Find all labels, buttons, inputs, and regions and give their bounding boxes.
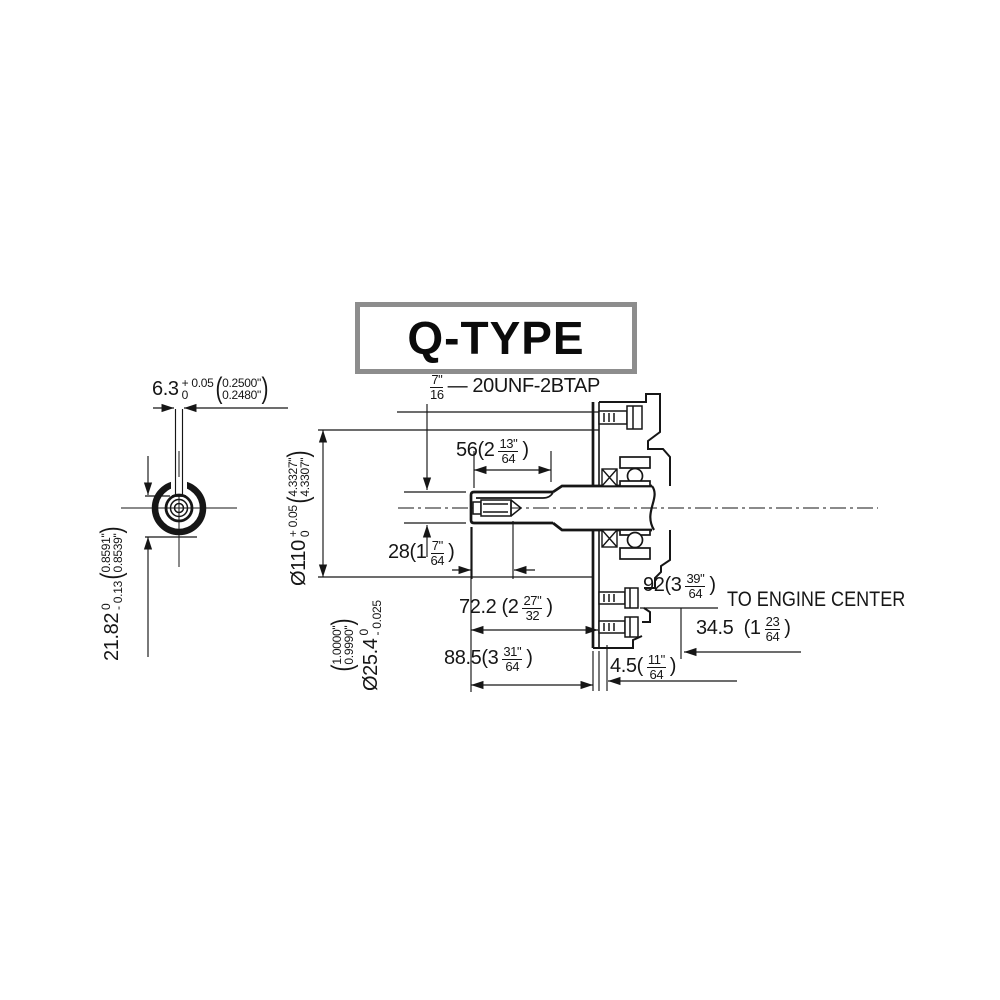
inch-stack: 1.0000"0.9990": [331, 626, 356, 665]
title-box: Q-TYPE: [355, 302, 637, 374]
oil-seal-upper: [602, 469, 617, 486]
flange-bolt-lower-1: [599, 588, 638, 608]
dim-face-offset-label: 4.5( 11"64 ): [610, 652, 676, 680]
tolerance-stack: + 0.050: [287, 505, 312, 537]
inch-fraction: 31"64: [502, 645, 522, 673]
dim-thread-depth-label: 28(1 7"64 ): [388, 538, 454, 566]
crankcase-section: [593, 394, 670, 648]
inch-lower: 0.2480": [222, 389, 261, 402]
dim-shaft-length-label: 88.5(3 31"64 ): [444, 644, 532, 672]
tol-lower: - 0.13: [112, 581, 125, 610]
frac-den: 64: [766, 630, 780, 644]
paren-close: ): [286, 451, 312, 458]
inch-stack: 4.3327"4.3307": [287, 458, 312, 497]
dim-value: 21.82: [101, 613, 123, 661]
frac-den: 64: [689, 587, 703, 601]
flange-bolt-top: [599, 406, 642, 429]
tolerance-stack: 0- 0.13: [100, 581, 125, 610]
inch-fraction: 13"64: [498, 437, 518, 465]
frac-num: 13": [498, 437, 518, 452]
frac-den: 64: [650, 668, 664, 682]
inch-stack: 0.8591"0.8539": [100, 534, 125, 573]
dim-value: 56(2: [456, 439, 494, 461]
flange-bolt-lower-2: [599, 617, 638, 637]
engine-center-text: TO ENGINE CENTER: [727, 589, 905, 611]
frac-den: 32: [526, 609, 540, 623]
paren-close: ): [784, 617, 790, 639]
inch-stack: 0.2500"0.2480": [222, 377, 261, 402]
page-title: Q-TYPE: [407, 311, 584, 365]
inch-lower: 0.9990": [343, 626, 356, 665]
inch-fraction: 7"64: [430, 539, 444, 567]
paren-close: ): [522, 439, 528, 461]
engineering-drawing-q-type: Q-TYPE 7"16 — 20UNF-2BTAP 6.3 + 0.050 ( …: [0, 0, 1000, 1000]
paren-close: ): [526, 647, 532, 669]
frac-num: 39": [685, 572, 705, 587]
frac-num: 11": [647, 653, 666, 668]
oil-seal-lower: [602, 530, 617, 547]
paren-open: (: [286, 497, 312, 504]
thread-fraction: 7"16: [430, 373, 444, 401]
dim-value: 28(1: [388, 541, 426, 563]
thread-spec: — 20UNF-2BTAP: [448, 375, 600, 397]
dim-value: 6.3: [152, 378, 179, 400]
inch-lower: 0.8539": [112, 534, 125, 573]
tolerance-stack: + 0.050: [182, 377, 214, 402]
drawing-canvas: [0, 0, 1000, 1000]
dim-value: Ø110: [288, 540, 310, 586]
frac-den: 16: [430, 388, 444, 402]
keyway-notch-mask: [171, 477, 187, 495]
frac-num: 23: [765, 615, 781, 630]
engine-center-note: TO ENGINE CENTER: [727, 589, 905, 611]
paren-close: ): [670, 655, 676, 677]
frac-den: 64: [505, 660, 519, 674]
inch-row: ( 1.0000"0.9990" ): [330, 620, 356, 670]
tolerance-stack: 0- 0.025: [358, 600, 383, 635]
inch-fraction: 11"64: [647, 653, 666, 681]
frac-num: 27": [522, 594, 542, 609]
tol-lower: 0: [299, 505, 312, 537]
dim-key-cut-label: 21.82 0- 0.13 ( 0.8591"0.8539" ): [99, 528, 125, 661]
inch-fraction: 39"64: [685, 572, 705, 600]
frac-den: 64: [430, 554, 444, 568]
tol-lower: 0: [182, 389, 214, 402]
frac-num: 7": [430, 373, 443, 388]
paren-close: ): [448, 541, 454, 563]
tol-upper: 0: [358, 600, 371, 635]
metric-row: Ø25.4 0- 0.025: [358, 599, 383, 691]
dim-value: 34.5 (1: [696, 617, 761, 639]
paren-open: (: [99, 573, 125, 580]
dim-keyway-width-label: 6.3 + 0.050 ( 0.2500"0.2480" ): [152, 376, 267, 402]
paren-open: (: [215, 376, 222, 402]
frac-num: 7": [431, 539, 444, 554]
frac-num: 31": [502, 645, 522, 660]
ball-bearing-lower: [620, 530, 650, 559]
dim-shoulder-length-label: 72.2 (2 27"32 ): [459, 593, 553, 621]
inch-fraction: 2364: [765, 615, 781, 643]
dim-center-offset-label: 34.5 (1 2364 ): [696, 614, 791, 642]
dim-keyway-length-label: 56(2 13"64 ): [456, 436, 529, 464]
paren-open: (: [330, 665, 356, 672]
dim-value: Ø25.4: [360, 639, 382, 691]
thread-callout: 7"16 — 20UNF-2BTAP: [428, 372, 600, 400]
inch-fraction: 27"32: [522, 594, 542, 622]
dim-value: 4.5(: [610, 655, 643, 677]
paren-close: ): [546, 596, 552, 618]
frac-den: 64: [502, 452, 516, 466]
paren-close: ): [330, 619, 356, 626]
ball-bearing-upper: [620, 457, 650, 486]
dim-to-engine-center-label: 92(3 39"64 ): [643, 571, 716, 599]
paren-close: ): [709, 574, 715, 596]
tol-lower: - 0.025: [371, 600, 384, 635]
dim-pilot-dia-label: Ø110 + 0.050 ( 4.3327"4.3307" ): [286, 452, 312, 586]
inch-lower: 4.3307": [299, 458, 312, 497]
dim-shaft-dia-label: ( 1.0000"0.9990" ) Ø25.4 0- 0.025: [330, 599, 383, 691]
dim-value: 72.2 (2: [459, 596, 518, 618]
dim-value: 92(3: [643, 574, 681, 596]
paren-close: ): [99, 526, 125, 533]
dim-value: 88.5(3: [444, 647, 498, 669]
paren-close: ): [261, 376, 268, 402]
